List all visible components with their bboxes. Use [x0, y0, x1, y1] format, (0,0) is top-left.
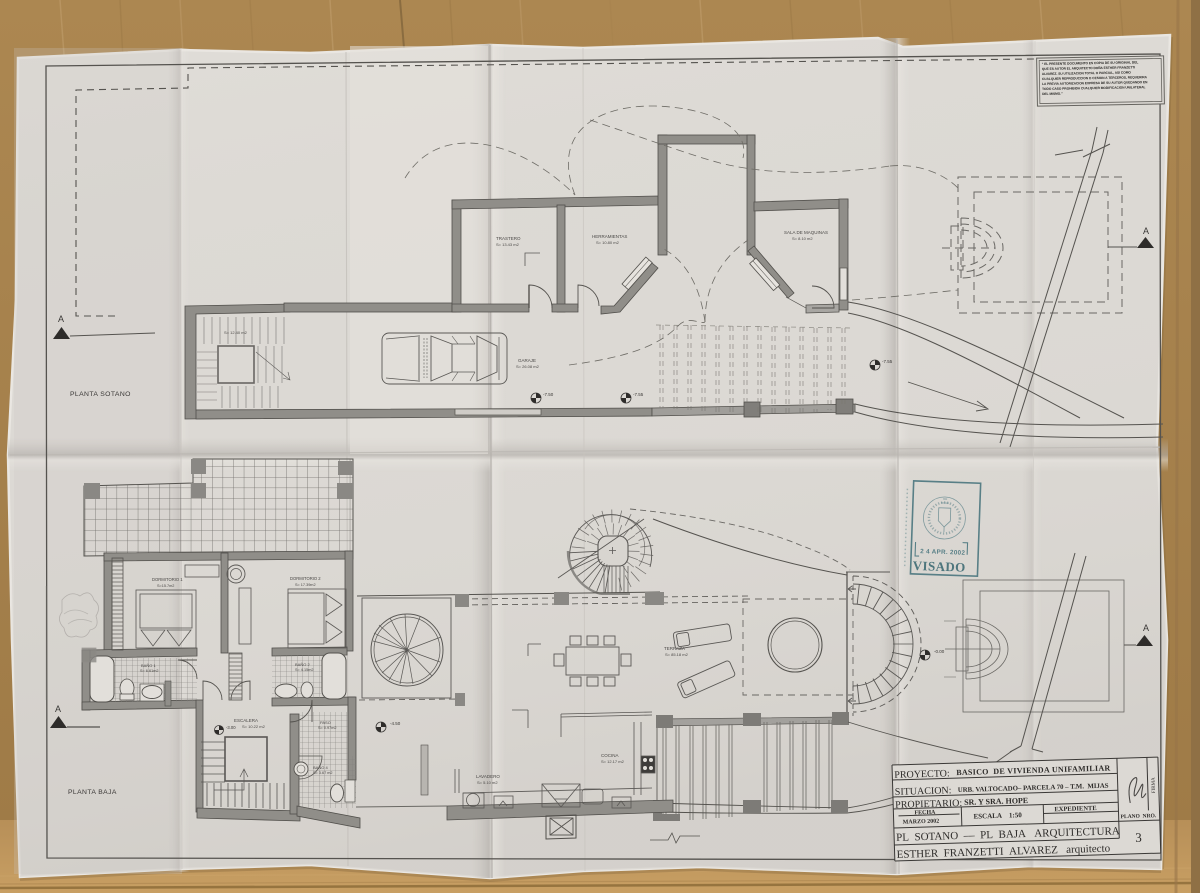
svg-text:-4.50: -4.50	[390, 721, 401, 726]
svg-text:S= 4.15m2: S= 4.15m2	[295, 668, 313, 672]
svg-text:GARAJE: GARAJE	[518, 358, 536, 363]
svg-text:-7.55: -7.55	[633, 392, 644, 397]
svg-text:PLANTA SOTANO: PLANTA SOTANO	[70, 391, 131, 398]
svg-text:S= 13.43 m2: S= 13.43 m2	[496, 242, 520, 247]
svg-text:FECHA: FECHA	[914, 810, 936, 817]
svg-text:HERRAMIENTAS: HERRAMIENTAS	[592, 234, 627, 239]
svg-text:DORMITORIO 1: DORMITORIO 1	[152, 577, 183, 582]
svg-text:DEL MISMO.”: DEL MISMO.”	[1042, 92, 1063, 96]
svg-text:A: A	[55, 704, 61, 714]
svg-text:S= 10.22 m2: S= 10.22 m2	[242, 724, 266, 729]
svg-text:S= 12.40 m2: S= 12.40 m2	[224, 330, 248, 335]
svg-text:S= 10.80 m2: S= 10.80 m2	[596, 240, 620, 245]
svg-text:SALA DE MAQUINAS: SALA DE MAQUINAS	[784, 230, 828, 235]
svg-text:S=15.7m2: S=15.7m2	[157, 584, 174, 588]
svg-text:A: A	[1143, 623, 1149, 633]
svg-text:A: A	[1143, 226, 1149, 236]
svg-text:TRASTERO: TRASTERO	[496, 236, 521, 241]
svg-text:S= 8.10 m2: S= 8.10 m2	[792, 236, 813, 241]
svg-text:BAÑO 2: BAÑO 2	[295, 662, 310, 667]
svg-text:3: 3	[1135, 830, 1142, 845]
svg-text:S= 17.39m2: S= 17.39m2	[295, 583, 316, 587]
svg-text:A: A	[58, 314, 64, 324]
svg-text:SR. Y SRA. HOPE: SR. Y SRA. HOPE	[964, 796, 1028, 807]
svg-text:S= 5.10 m2: S= 5.10 m2	[477, 780, 498, 785]
svg-text:PASO: PASO	[320, 720, 331, 725]
svg-text:MARZO 2002: MARZO 2002	[903, 819, 940, 826]
svg-text:VISADO: VISADO	[912, 558, 965, 575]
svg-text:S= 26.08 m2: S= 26.08 m2	[516, 364, 540, 369]
svg-text:PLANO NRO.: PLANO NRO.	[1121, 813, 1157, 820]
svg-text:LAVADERO: LAVADERO	[476, 774, 500, 779]
svg-text:S= 12.17 m2: S= 12.17 m2	[601, 759, 625, 764]
svg-text:SITUACION:: SITUACION:	[895, 785, 952, 798]
svg-text:FIRMA: FIRMA	[1151, 777, 1156, 793]
svg-text:ESCALA 1:50: ESCALA 1:50	[973, 811, 1022, 820]
svg-text:S= 6.61m2: S= 6.61m2	[140, 669, 158, 673]
svg-text:PROYECTO:: PROYECTO:	[894, 768, 950, 781]
svg-text:BAÑO 4: BAÑO 4	[313, 765, 328, 770]
svg-text:ESCALERA: ESCALERA	[234, 718, 258, 723]
svg-text:-7.55: -7.55	[882, 359, 893, 364]
svg-text:PLANTA BAJA: PLANTA BAJA	[68, 789, 117, 796]
svg-text:S= 0.97m2: S= 0.97m2	[318, 726, 336, 730]
svg-text:BAÑO 1: BAÑO 1	[141, 663, 156, 668]
svg-text:-3.00: -3.00	[226, 725, 236, 730]
svg-text:-7.50: -7.50	[543, 392, 554, 397]
svg-text:S= 85.18 m2: S= 85.18 m2	[665, 652, 689, 657]
svg-text:DORMITORIO 2: DORMITORIO 2	[290, 576, 321, 581]
svg-text:EXPEDIENTE: EXPEDIENTE	[1054, 805, 1096, 813]
svg-text:COCINA: COCINA	[601, 753, 619, 758]
